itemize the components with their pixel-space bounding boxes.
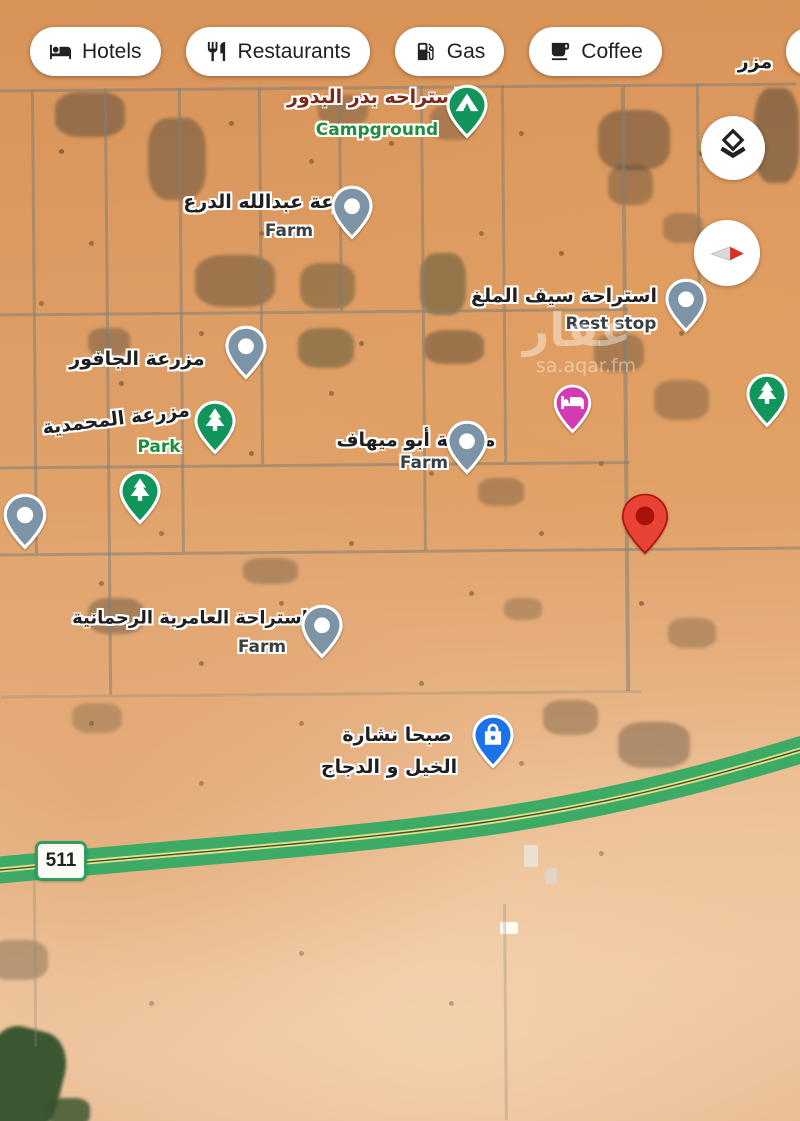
poi-category-abu-mihaf[interactable]: Farm (400, 453, 448, 473)
rest-stop-pin[interactable] (664, 278, 708, 333)
poi-label-aljafoor[interactable]: مزرعة الجافور (69, 348, 204, 370)
hotel-pin[interactable] (552, 384, 593, 434)
campground-pin[interactable] (445, 84, 489, 139)
poi-label-alamiriya[interactable]: استراحة العامرية الرحمانية (72, 608, 308, 629)
poi-label-sabha-line1[interactable]: صبحا نشارة (342, 724, 451, 746)
poi-label-saif-almalagh[interactable]: استراحة سيف الملغ (471, 285, 657, 307)
chip-coffee-label: Coffee (581, 40, 643, 64)
layers-button[interactable] (701, 116, 765, 180)
farm-pin-alamiriya[interactable] (300, 604, 344, 659)
road-grid (0, 0, 800, 1121)
route-badge-511: 511 (35, 841, 87, 881)
poi-label-edge-partial[interactable]: مزر (738, 51, 773, 73)
shopping-pin[interactable] (471, 714, 515, 769)
chip-hotels-label: Hotels (82, 40, 142, 64)
chip-coffee[interactable]: Coffee (529, 27, 662, 76)
farm-pin-aljafoor[interactable] (224, 325, 268, 380)
poi-category-almohammadiya[interactable]: Park (137, 437, 180, 457)
chip-gas-label: Gas (447, 40, 486, 64)
tree-pin-right[interactable] (745, 373, 789, 428)
hotel-icon (49, 40, 72, 63)
poi-label-sabha-line2[interactable]: الخيل و الدجاج (321, 756, 457, 778)
destination-pin[interactable] (619, 492, 671, 556)
tree-pin-left[interactable] (118, 470, 162, 525)
chip-restaurants-label: Restaurants (238, 40, 351, 64)
chip-gas[interactable]: Gas (395, 27, 505, 76)
park-pin-almohammadiya[interactable] (193, 400, 237, 455)
map-viewport[interactable]: 511 عقار sa.aqar.fm استراحه بدر البدور C… (0, 0, 800, 1121)
coffee-icon (548, 40, 571, 63)
farm-pin-abdullah[interactable] (330, 185, 374, 240)
compass-icon (706, 232, 748, 274)
poi-category-badr-albodour[interactable]: Campground (316, 120, 438, 140)
poi-label-badr-albodour[interactable]: استراحه بدر البدور (287, 86, 461, 108)
route-number: 511 (46, 850, 77, 872)
chip-restaurants[interactable]: Restaurants (186, 27, 370, 76)
layers-icon (713, 128, 753, 168)
farm-pin-left-edge[interactable] (2, 493, 48, 550)
restaurant-icon (205, 40, 228, 63)
chip-hotels[interactable]: Hotels (30, 27, 161, 76)
category-chip-bar: Hotels Restaurants Gas Coffee (30, 27, 662, 76)
farm-pin-abu-mihaf[interactable] (445, 420, 489, 475)
poi-category-alamiriya[interactable]: Farm (238, 637, 286, 657)
gas-icon (414, 40, 437, 63)
compass-button[interactable] (694, 220, 760, 286)
poi-category-abdullah-aldare[interactable]: Farm (265, 221, 313, 241)
poi-category-saif-almalagh[interactable]: Rest stop (566, 314, 657, 334)
